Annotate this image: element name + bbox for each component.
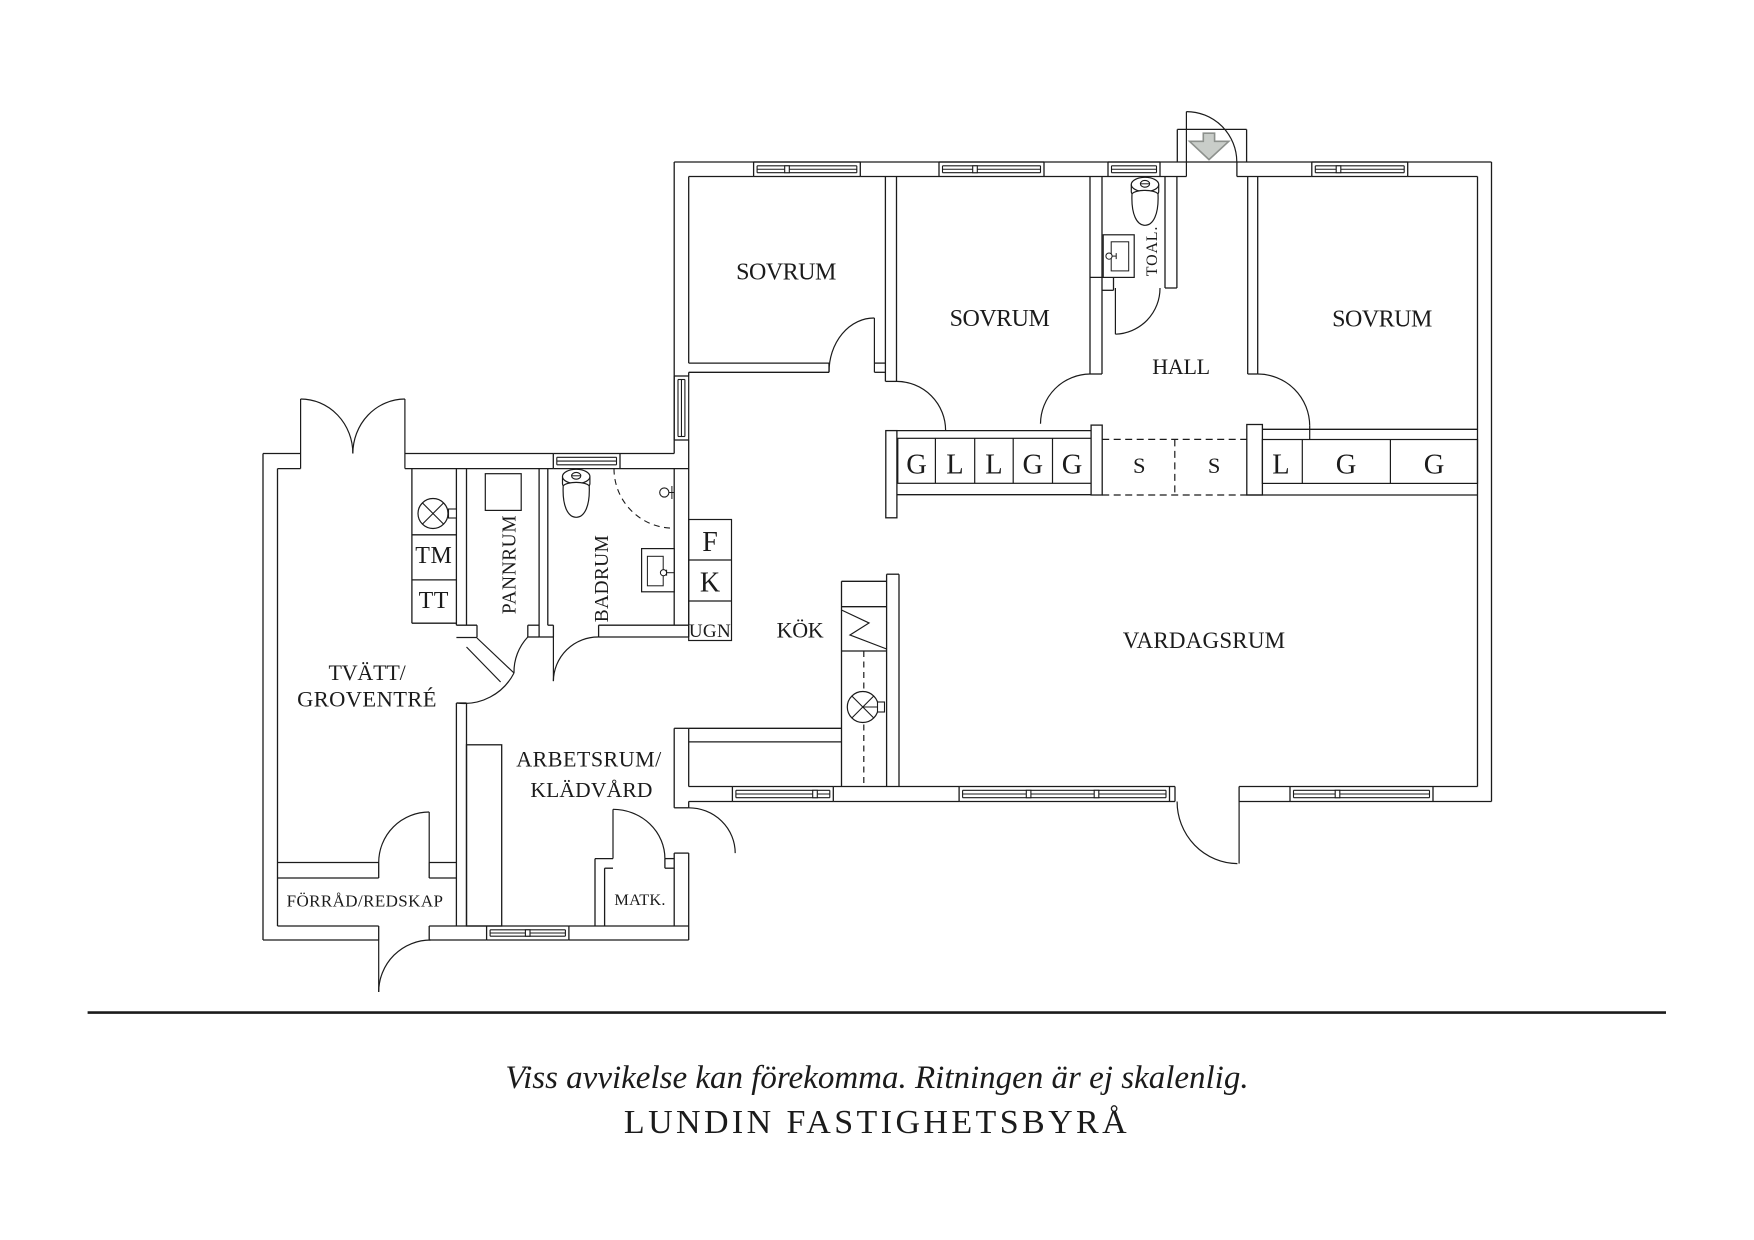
svg-text:G: G	[906, 449, 927, 480]
svg-text:G: G	[1336, 449, 1357, 480]
svg-text:S: S	[1133, 453, 1146, 478]
svg-text:G: G	[1062, 449, 1083, 480]
svg-text:BADRUM: BADRUM	[592, 535, 613, 622]
svg-text:L: L	[1272, 449, 1289, 480]
svg-text:TM: TM	[415, 543, 452, 569]
svg-text:PANNRUM: PANNRUM	[500, 515, 521, 614]
svg-text:KLÄDVÅRD: KLÄDVÅRD	[530, 778, 652, 802]
svg-text:UGN: UGN	[689, 621, 731, 642]
svg-text:LUNDIN FASTIGHETSBYRÅ: LUNDIN FASTIGHETSBYRÅ	[624, 1104, 1130, 1141]
svg-text:Viss avvikelse kan förekomma.: Viss avvikelse kan förekomma. Ritningen …	[505, 1060, 1248, 1096]
svg-text:TT: TT	[419, 588, 449, 614]
svg-text:F: F	[702, 527, 718, 558]
svg-text:SOVRUM: SOVRUM	[736, 260, 836, 286]
svg-text:L: L	[946, 449, 963, 480]
svg-text:ARBETSRUM/: ARBETSRUM/	[516, 747, 662, 772]
svg-text:TVÄTT/: TVÄTT/	[328, 660, 406, 685]
svg-text:HALL: HALL	[1152, 354, 1209, 379]
svg-text:VARDAGSRUM: VARDAGSRUM	[1123, 628, 1286, 653]
svg-text:MATK.: MATK.	[614, 890, 665, 909]
svg-text:K: K	[700, 568, 720, 599]
svg-text:SOVRUM: SOVRUM	[950, 306, 1050, 332]
svg-text:G: G	[1424, 449, 1445, 480]
svg-text:TOAL.: TOAL.	[1144, 226, 1161, 276]
svg-text:GROVENTRÉ: GROVENTRÉ	[297, 687, 437, 712]
svg-text:G: G	[1023, 449, 1044, 480]
svg-text:FÖRRÅD/REDSKAP: FÖRRÅD/REDSKAP	[287, 892, 444, 911]
svg-text:L: L	[985, 449, 1002, 480]
svg-text:S: S	[1208, 453, 1221, 478]
svg-text:SOVRUM: SOVRUM	[1332, 307, 1432, 333]
svg-text:KÖK: KÖK	[777, 618, 824, 643]
